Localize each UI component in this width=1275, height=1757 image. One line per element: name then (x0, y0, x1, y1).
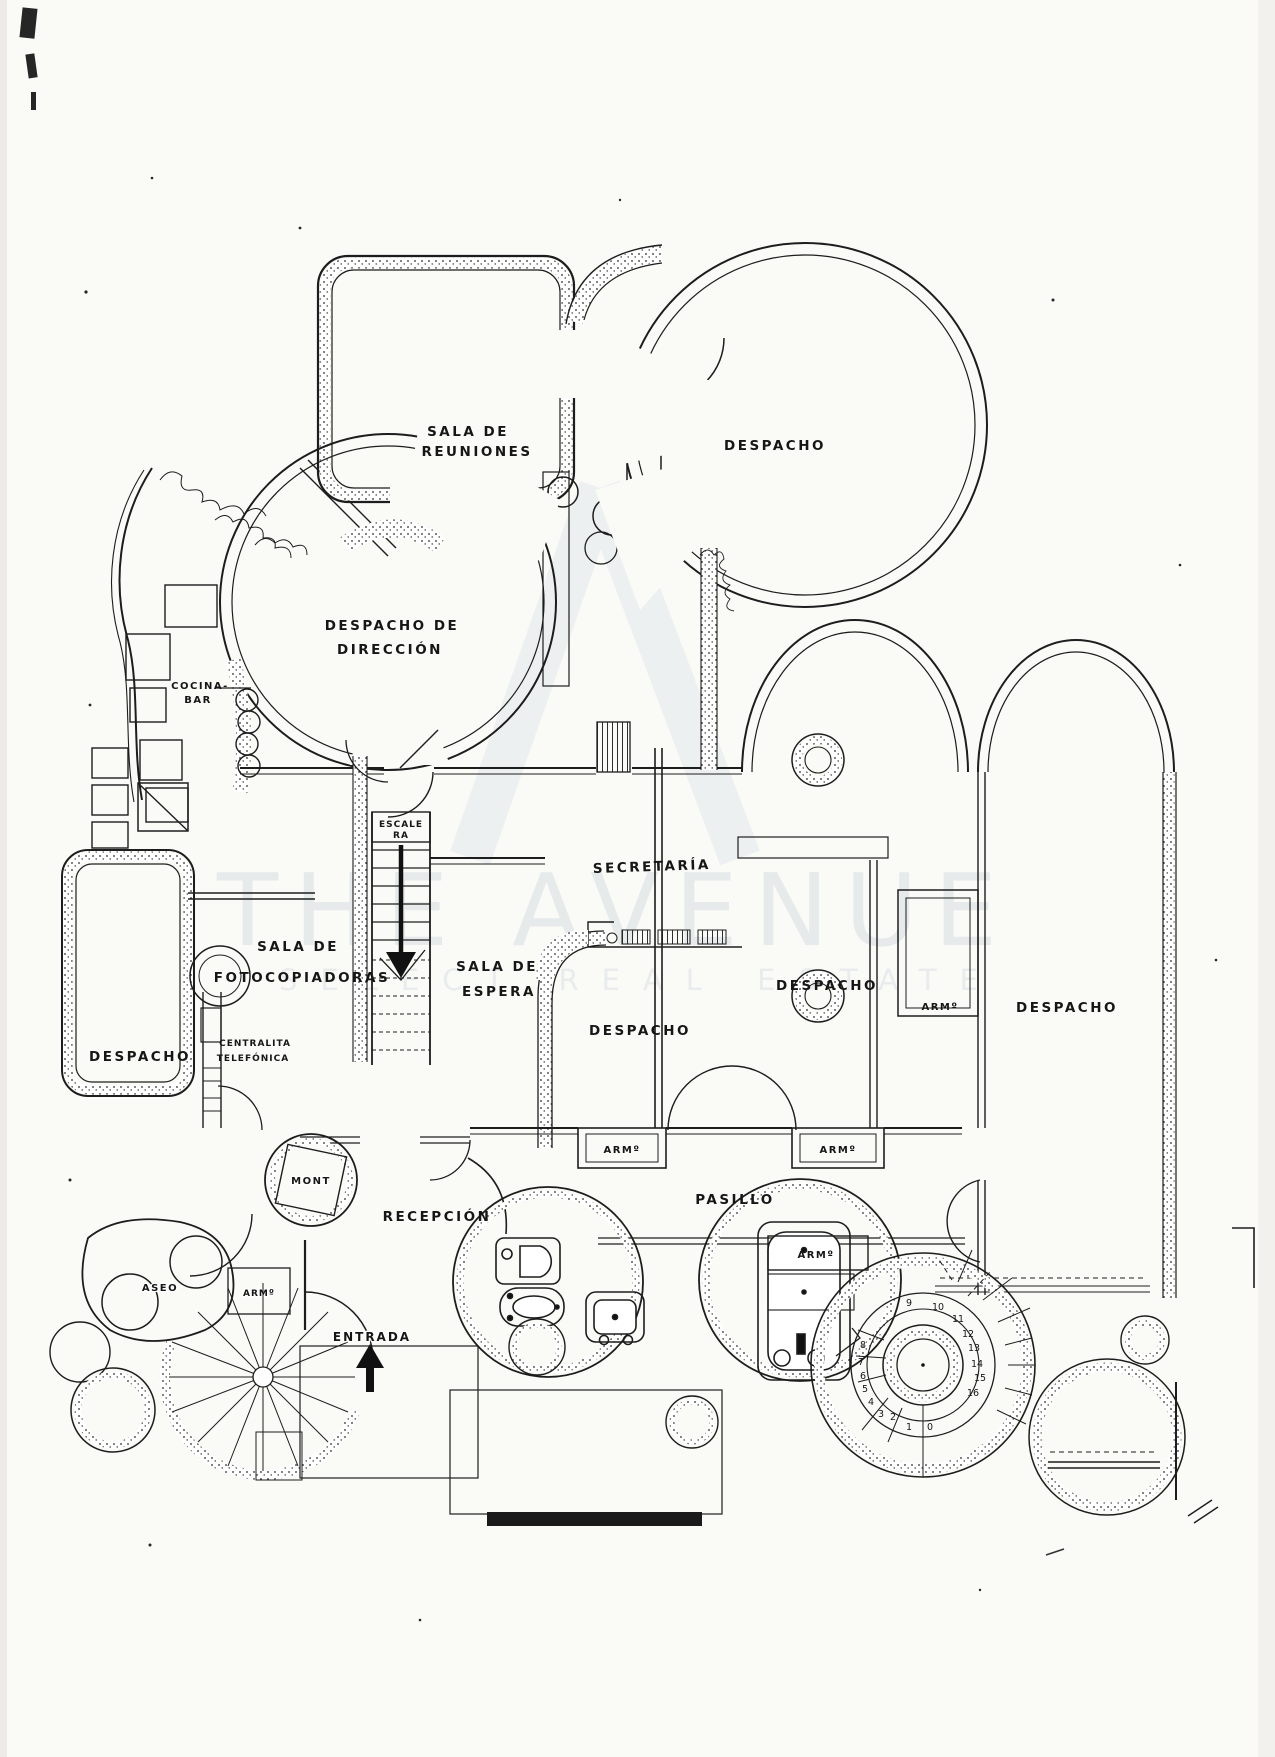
room-label-sala-reuniones: REUNIONES (421, 444, 532, 460)
svg-text:6: 6 (860, 1371, 866, 1382)
door-arc (668, 1066, 732, 1130)
scan-right-edge (1258, 0, 1275, 1757)
ivy-wall-band (700, 548, 734, 770)
montacargas-lift: MONT (265, 1134, 357, 1226)
door-gap (548, 330, 584, 398)
svg-text:11: 11 (952, 1314, 964, 1325)
room-label-armario: ARMº (243, 1289, 275, 1299)
room-label-fotocopiadoras: FOTOCOPIADORAS (214, 970, 390, 986)
svg-text:16: 16 (967, 1388, 979, 1399)
svg-text:13: 13 (968, 1343, 980, 1354)
door-arc (732, 1066, 796, 1130)
room-label-centralita: TELEFÓNICA (217, 1052, 289, 1064)
svg-text:14: 14 (971, 1359, 983, 1370)
radial-terrace-stair (165, 1283, 355, 1475)
room-label-direccion: DIRECCIÓN (337, 640, 443, 658)
room-label-recepcion: RECEPCIÓN (383, 1207, 492, 1225)
room-label-despacho-centro: DESPACHO (589, 1023, 691, 1039)
svg-text:3: 3 (878, 1409, 884, 1420)
svg-text:0: 0 (927, 1422, 933, 1433)
svg-text:2: 2 (890, 1412, 896, 1423)
room-label-armario: ARMº (603, 1145, 640, 1156)
room-label-armario: ARMº (797, 1250, 834, 1261)
entry-deck (256, 1346, 722, 1526)
room-label-direccion: DESPACHO DE (325, 618, 460, 634)
door-arc (430, 1140, 470, 1180)
room-label-espera: SALA DE (456, 959, 538, 975)
room-label-cocina-bar: BAR (184, 695, 212, 706)
svg-text:10: 10 (932, 1302, 944, 1313)
room-label-entrada: ENTRADA (333, 1330, 411, 1344)
door-arc (947, 1180, 980, 1262)
room-label-centralita: CENTRALITA (219, 1039, 291, 1049)
svg-text:1: 1 (906, 1422, 912, 1433)
room-label-sala-reuniones: SALA DE (427, 424, 509, 440)
room-label-mont: MONT (291, 1176, 331, 1187)
svg-text:8: 8 (860, 1340, 866, 1351)
scan-artifacts (19, 7, 1217, 1621)
room-label-armario: ARMº (819, 1145, 856, 1156)
entrada: ENTRADA (305, 1240, 411, 1392)
svg-text:15: 15 (974, 1373, 986, 1384)
scan-left-edge (0, 0, 7, 1757)
room-despacho-direccion (220, 420, 560, 770)
room-label-aseo: ASEO (142, 1283, 178, 1294)
room-label-escalera: RA (393, 831, 409, 841)
entry-arrow-icon (356, 1344, 384, 1368)
room-label-despacho-top: DESPACHO (724, 438, 826, 454)
pier-vlines (597, 722, 630, 772)
floor-plan-drawing: THE AVENUE SELECT REAL ESTATE (0, 0, 1275, 1757)
svg-text:9: 9 (906, 1298, 912, 1309)
room-label-despacho-derecha: DESPACHO (776, 978, 878, 994)
svg-text:12: 12 (962, 1329, 974, 1340)
door-arc (218, 1086, 262, 1130)
svg-text:7: 7 (858, 1357, 864, 1368)
door-arc (388, 772, 433, 817)
room-label-despacho-fondo: DESPACHO (1016, 1000, 1118, 1016)
centralita-equipment (201, 1008, 221, 1042)
fixture-circle (170, 1236, 222, 1288)
room-label-pasillo: PASILLO (695, 1192, 775, 1208)
right-terrace (1029, 1228, 1254, 1523)
svg-text:5: 5 (862, 1384, 868, 1395)
room-label-armario: ARMº (921, 1002, 958, 1013)
room-label-escalera: ESCALE (379, 820, 423, 830)
door-arc (305, 1292, 373, 1360)
svg-text:4: 4 (868, 1397, 874, 1408)
room-despacho-top (595, 243, 987, 610)
room-label-despacho-izquierda: DESPACHO (89, 1049, 191, 1065)
scanned-floor-plan-page: THE AVENUE SELECT REAL ESTATE (0, 0, 1275, 1757)
room-label-espera: ESPERA (462, 984, 536, 1000)
terrace-band (345, 529, 440, 546)
room-label-fotocopiadoras: SALA DE (257, 939, 339, 955)
cocina-bar-counters (92, 585, 260, 848)
room-label-cocina-bar: COCINA- (171, 681, 229, 692)
